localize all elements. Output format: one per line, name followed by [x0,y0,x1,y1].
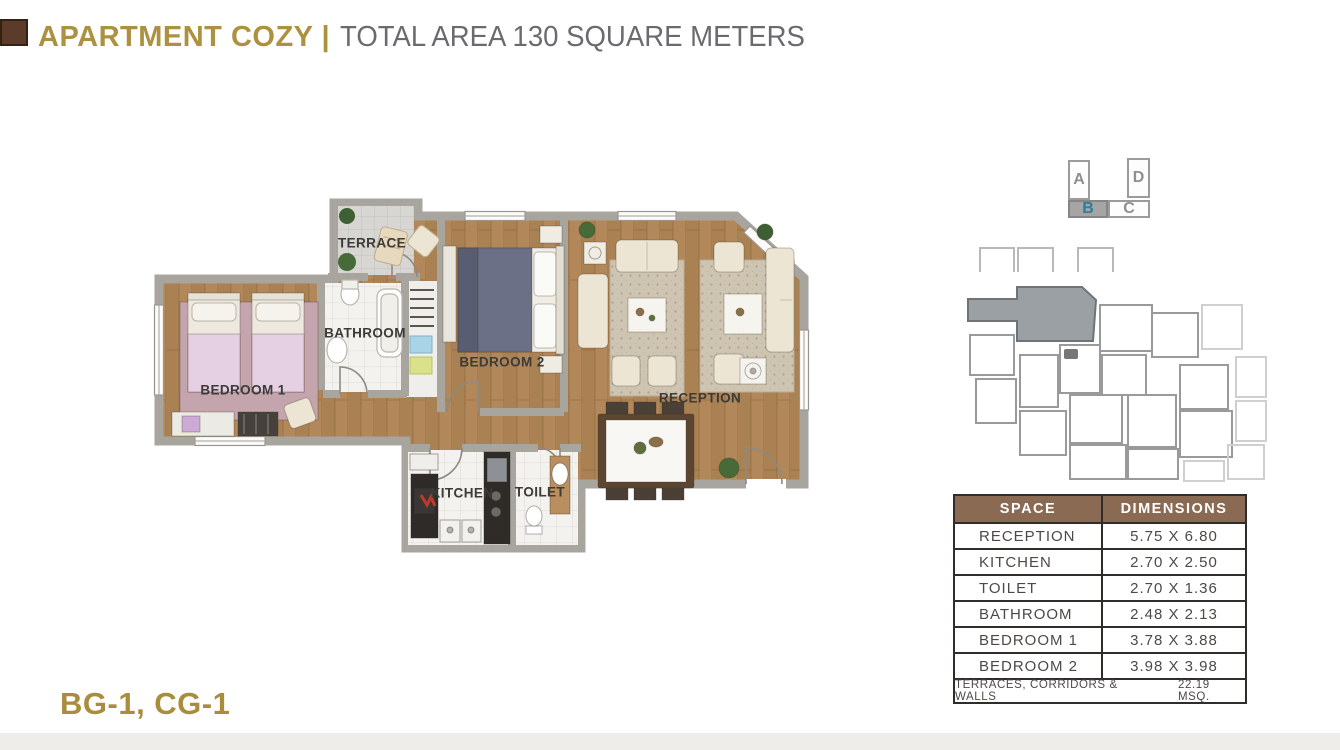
unit-key-a: A [1068,160,1090,200]
table-footer-row: TERRACES, CORRIDORS & WALLS 22.19 MSQ. [955,678,1245,702]
room-label-bedroom2: BEDROOM 2 [459,355,544,370]
site-plan-marker [1064,349,1078,359]
cell-space: TOILET [955,576,1103,600]
table-row: KITCHEN 2.70 X 2.50 [955,548,1245,574]
tv-console [238,412,278,436]
plant-icon [339,208,355,224]
table-row: BATHROOM 2.48 X 2.13 [955,600,1245,626]
header-dimensions: DIMENSIONS [1103,496,1245,522]
twin-bed [188,293,240,392]
sink [327,337,347,363]
twin-bed [252,293,304,392]
cell-dimensions: 3.98 X 3.98 [1103,654,1245,678]
accent-square [0,19,28,46]
ac-unit [740,358,766,384]
plant-icon [579,222,595,238]
unit-key-c: C [1108,200,1150,218]
dresser [172,412,234,436]
plant-icon [719,458,739,478]
entrance-opening [746,479,786,489]
fridge [410,454,438,470]
apartment-title: APARTMENT COZY [38,21,314,53]
unit-key: A D B C [1065,155,1157,223]
plant-icon [338,253,356,271]
site-plan-highlighted-unit [968,287,1096,341]
dining-set [598,402,694,500]
room-label-toilet: TOILET [515,485,565,500]
balconies [980,248,1113,272]
unit-key-b-highlighted: B [1068,200,1108,218]
side-table [584,242,606,264]
cell-space: BEDROOM 2 [955,654,1103,678]
toilet-fixture [526,506,542,534]
cell-dimensions: 2.48 X 2.13 [1103,602,1245,626]
cell-dimensions: 2.70 X 1.36 [1103,576,1245,600]
storage-box [182,416,200,432]
cell-dimensions: 2.70 X 2.50 [1103,550,1245,574]
coffee-table [628,298,666,332]
site-plan-light-walls [1184,305,1266,481]
footer-label: TERRACES, CORRIDORS & WALLS [955,679,1162,703]
unit-codes: BG-1, CG-1 [60,686,230,722]
floor-plan: TERRACE BATHROOM BEDROOM 1 BEDROOM 2 REC… [140,190,880,630]
table-row: TOILET 2.70 X 1.36 [955,574,1245,600]
double-bed [458,246,564,354]
nightstand [540,226,562,243]
header-space: SPACE [955,496,1103,522]
room-label-bedroom1: BEDROOM 1 [200,383,285,398]
bedroom1-furniture [172,293,318,436]
title-separator: | [322,21,330,53]
room-label-terrace: TERRACE [338,236,406,251]
cell-space: BATHROOM [955,602,1103,626]
bottom-bar [0,733,1340,750]
cell-dimensions: 5.75 X 6.80 [1103,524,1245,548]
cell-space: RECEPTION [955,524,1103,548]
room-label-bathroom: BATHROOM [324,326,406,341]
site-plan-walls [970,305,1232,479]
site-plan [940,245,1270,490]
cell-space: KITCHEN [955,550,1103,574]
table-header-row: SPACE DIMENSIONS [955,496,1245,522]
table-row: BEDROOM 1 3.78 X 3.88 [955,626,1245,652]
page-title: APARTMENT COZY|TOTAL AREA 130 SQUARE MET… [38,22,829,53]
room-label-kitchen: KITCHEN [431,486,494,501]
footer-value: 22.19 MSQ. [1178,679,1245,703]
table-row: RECEPTION 5.75 X 6.80 [955,522,1245,548]
bedroom2-furniture [443,226,564,373]
wardrobe [443,246,456,342]
table-row: BEDROOM 2 3.98 X 3.98 [955,652,1245,678]
dimensions-table: SPACE DIMENSIONS RECEPTION 5.75 X 6.80 K… [953,494,1247,704]
floor-plan-drawing [140,190,880,630]
kitchen-sink [487,458,507,482]
cell-dimensions: 3.78 X 3.88 [1103,628,1245,652]
sink [552,463,568,485]
unit-key-d: D [1127,158,1150,198]
plant-icon [757,224,773,240]
room-label-reception: RECEPTION [659,391,741,406]
cell-space: BEDROOM 1 [955,628,1103,652]
total-area-subtitle: TOTAL AREA 130 SQUARE METERS [340,22,805,53]
